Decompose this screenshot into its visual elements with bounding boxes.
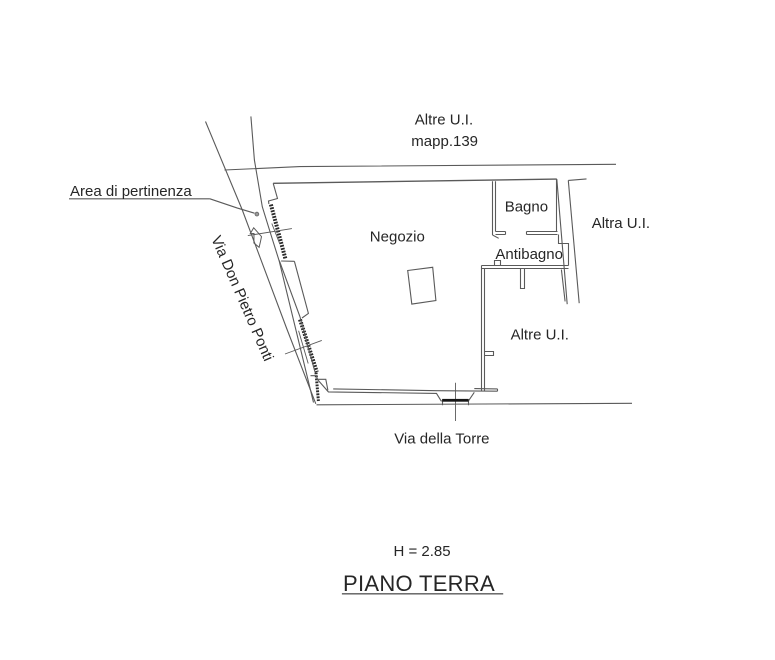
svg-text:Altra U.I.: Altra U.I. bbox=[592, 215, 650, 232]
svg-text:Altre U.I.: Altre U.I. bbox=[511, 326, 569, 343]
svg-text:Antibagno: Antibagno bbox=[495, 246, 563, 263]
svg-text:Area di pertinenza: Area di pertinenza bbox=[70, 183, 192, 200]
svg-text:mapp.139: mapp.139 bbox=[411, 133, 478, 150]
svg-text:Bagno: Bagno bbox=[505, 199, 548, 216]
svg-text:Negozio: Negozio bbox=[370, 228, 425, 245]
svg-text:H = 2.85: H = 2.85 bbox=[394, 543, 451, 560]
svg-text:PIANO TERRA: PIANO TERRA bbox=[343, 571, 495, 596]
svg-text:Via della Torre: Via della Torre bbox=[394, 431, 489, 448]
svg-text:Altre U.I.: Altre U.I. bbox=[415, 112, 473, 129]
svg-text:Via Don Pietro Ponti: Via Don Pietro Ponti bbox=[207, 233, 276, 363]
